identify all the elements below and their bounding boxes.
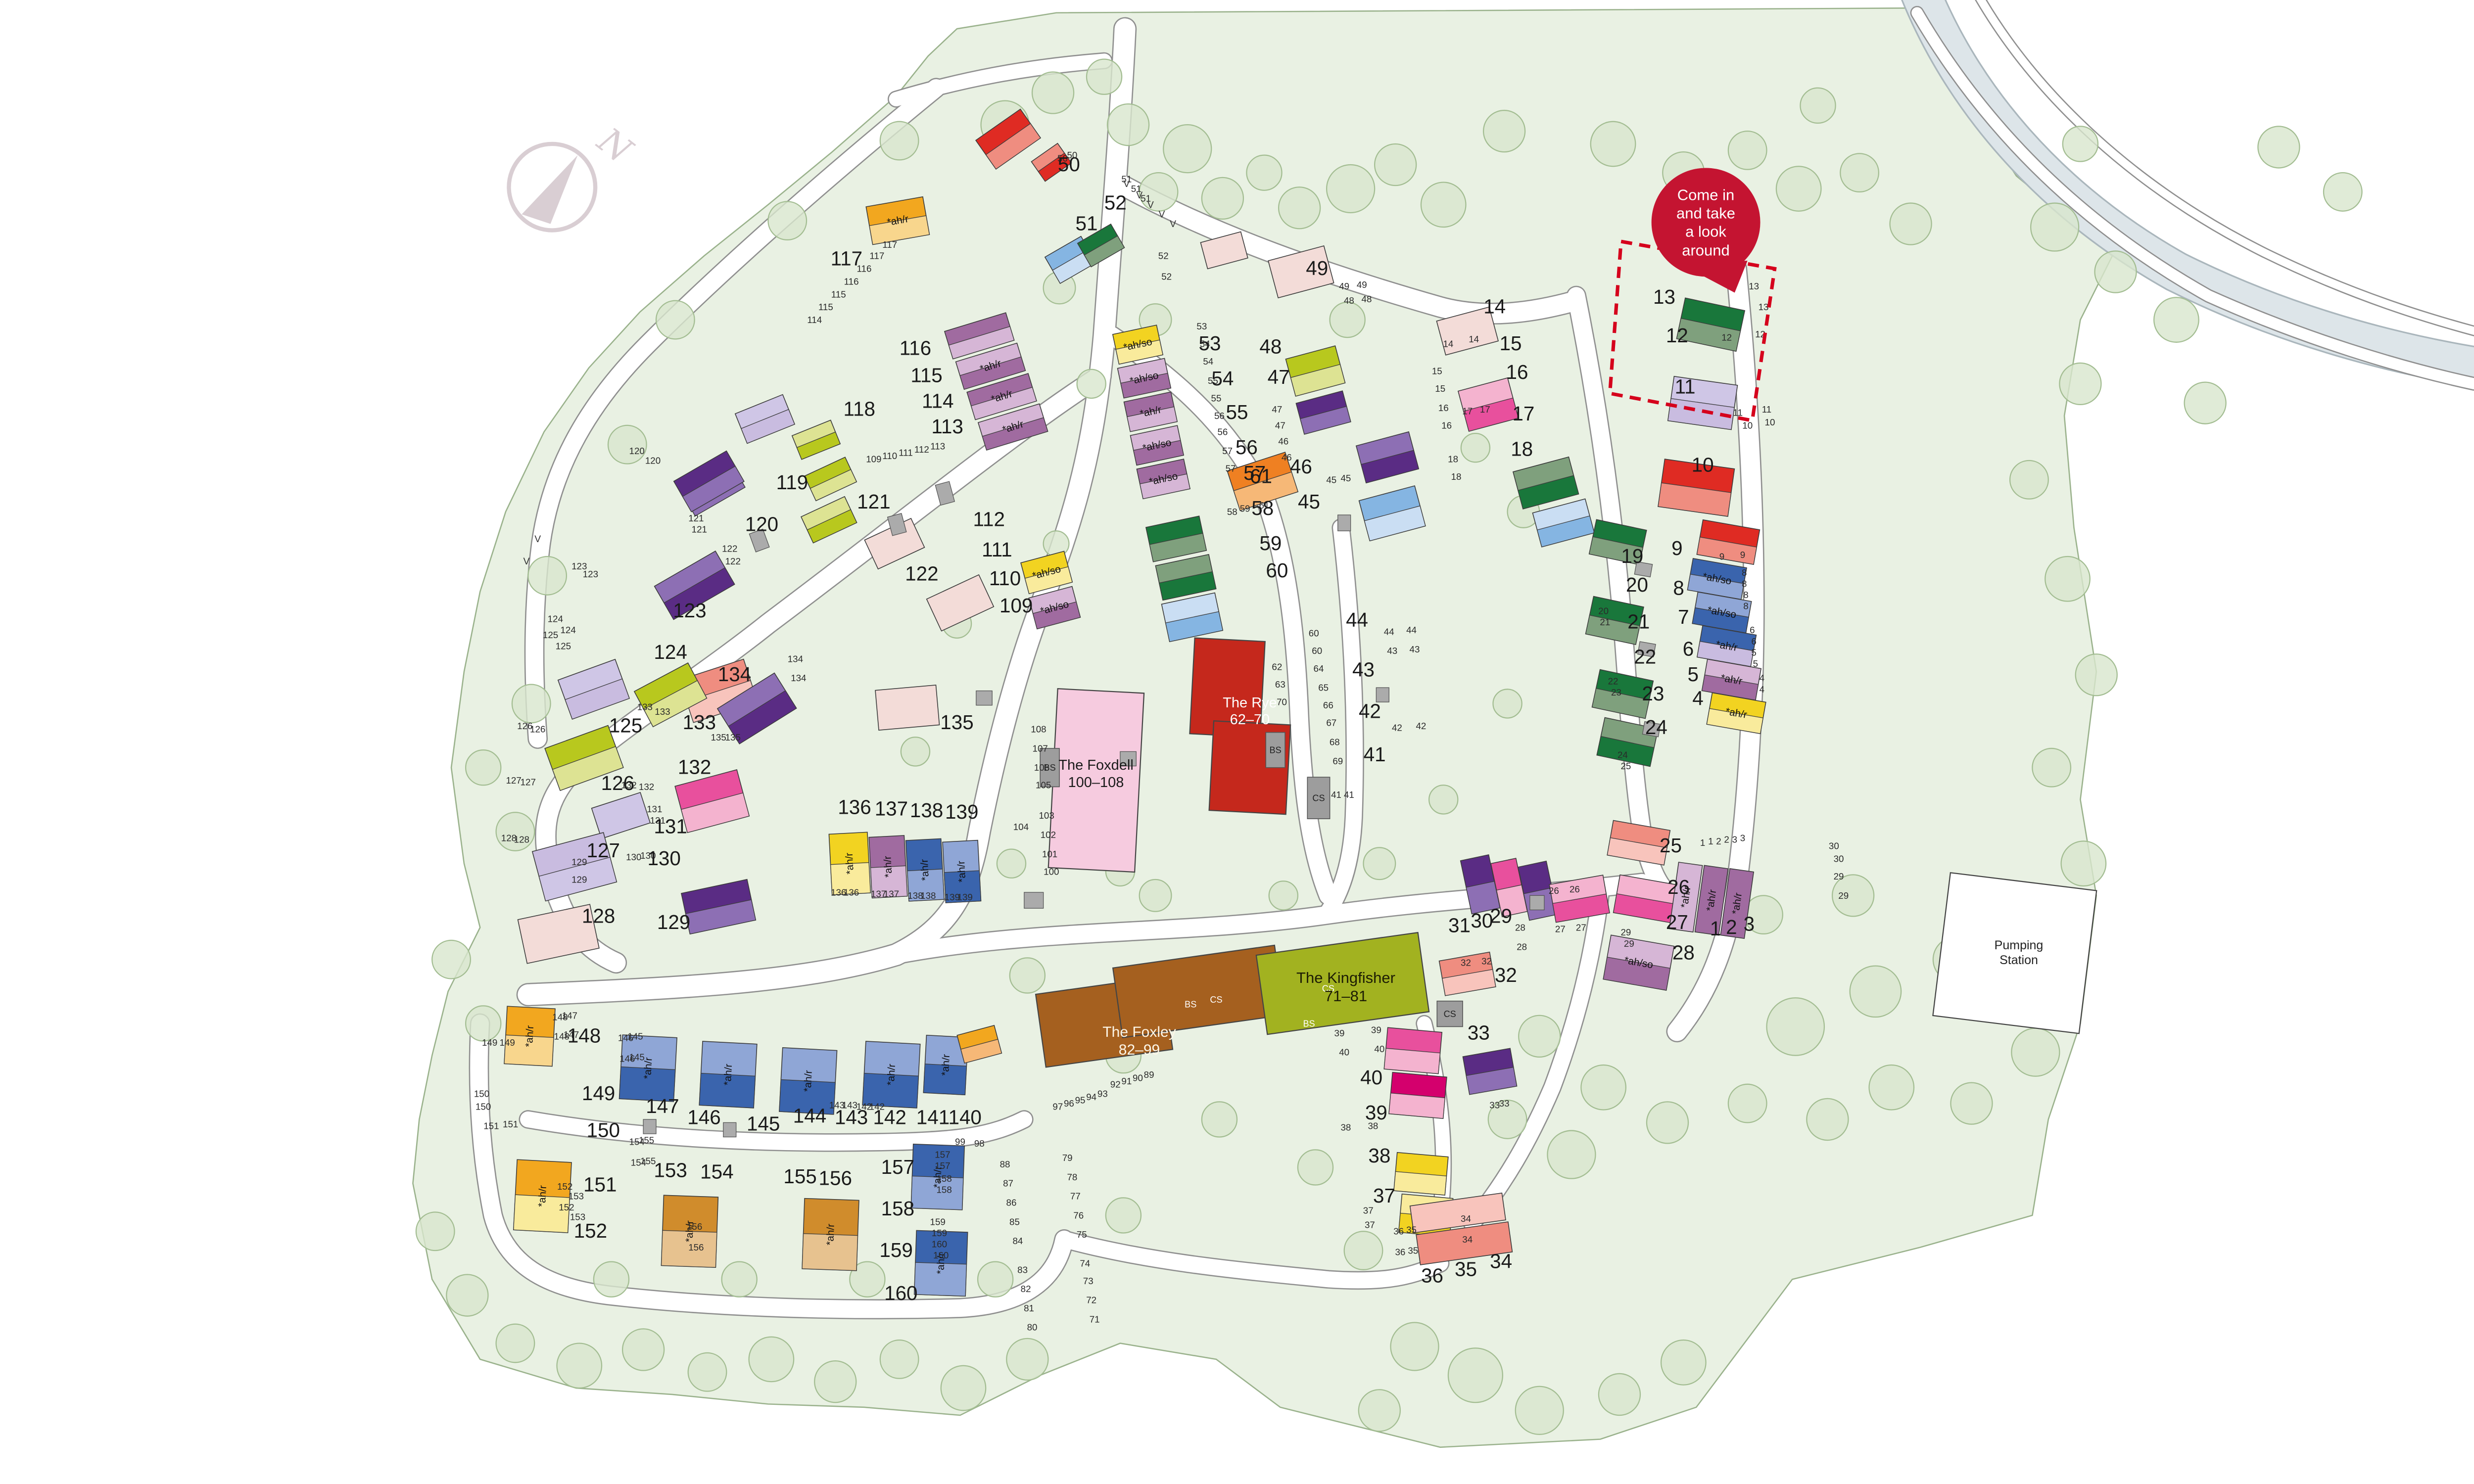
house: *ah/r xyxy=(514,1159,571,1233)
parking-bay-number: 21 xyxy=(1600,617,1610,627)
parking-bay-number: 93 xyxy=(1097,1089,1108,1099)
tree-icon xyxy=(446,1275,488,1316)
parking-bay-number: 43 xyxy=(1410,644,1420,654)
parking-bay-number: 122 xyxy=(722,543,737,554)
parking-bay-number: 158 xyxy=(936,1173,952,1184)
tree-icon xyxy=(2031,203,2079,251)
parking-bay-number: 35 xyxy=(1408,1245,1418,1255)
parking-bay-number: 42 xyxy=(1392,722,1402,733)
parking-bay-number: 59 xyxy=(1240,503,1250,513)
parking-bay-number: 156 xyxy=(687,1221,702,1232)
plot-number: 42 xyxy=(1359,700,1381,723)
parking-bay-number: 10 xyxy=(1765,417,1775,427)
parking-bay-number: 57 xyxy=(1226,464,1236,474)
parking-bay-number: 125 xyxy=(543,630,558,640)
tree-icon xyxy=(1591,122,1636,167)
parking-bay-number: 151 xyxy=(503,1119,518,1129)
house-footprint xyxy=(875,685,939,730)
parking-bay-number: 152 xyxy=(559,1202,574,1212)
parking-bay-number: 149 xyxy=(500,1037,515,1048)
named-building-shape xyxy=(1048,689,1144,872)
parking-bay-number: 84 xyxy=(1012,1236,1023,1246)
parking-bay-number: 15 xyxy=(1432,366,1442,376)
parking-bay-number: 98 xyxy=(974,1138,985,1149)
plot-number: 36 xyxy=(1421,1264,1443,1287)
tree-icon xyxy=(1375,144,1416,185)
parking-bay-number: 77 xyxy=(1070,1191,1081,1202)
parking-bay-number: 2 xyxy=(1724,835,1729,845)
plot-number: 140 xyxy=(948,1106,981,1129)
parking-bay-number: 147 xyxy=(562,1010,577,1020)
parking-bay-number: 29 xyxy=(1620,927,1631,937)
house: *ah/r xyxy=(862,1041,920,1108)
parking-bay-number: 6 xyxy=(1751,636,1756,647)
parking-bay-number: 160 xyxy=(932,1239,947,1250)
tree-icon xyxy=(1599,1374,1640,1415)
parking-bay-number: 3 xyxy=(1732,835,1737,845)
affordable-housing-label: *ah/r xyxy=(722,1064,734,1086)
tree-icon xyxy=(1032,72,1074,113)
affordable-housing-label: *ah/r xyxy=(824,1223,837,1246)
service-box-label: CS xyxy=(1444,1009,1456,1019)
house-footprint-half xyxy=(1394,1171,1446,1195)
plot-number: 129 xyxy=(657,911,690,933)
plot-number: 160 xyxy=(884,1282,917,1304)
plot-number: 130 xyxy=(647,847,680,870)
tree-icon xyxy=(2154,297,2199,342)
plot-number: 14 xyxy=(1483,295,1506,318)
parking-bay-number: 4 xyxy=(1760,673,1764,683)
tree-icon xyxy=(2061,841,2106,886)
parking-bay-number: 44 xyxy=(1406,625,1417,635)
plot-number: 50 xyxy=(1058,153,1080,176)
parking-bay-number: 60 xyxy=(1312,646,1322,656)
parking-bay-number: 34 xyxy=(1462,1234,1473,1245)
visitor-bay-label: V xyxy=(534,534,541,545)
tree-icon xyxy=(2010,461,2048,499)
parking-bay-number: 29 xyxy=(1838,890,1849,901)
plot-number: 15 xyxy=(1500,332,1522,355)
plot-number: 22 xyxy=(1634,646,1656,668)
plot-number: 150 xyxy=(587,1118,620,1141)
parking-bay-number: 101 xyxy=(1042,849,1057,859)
parking-bay-number: 135 xyxy=(725,732,741,742)
tree-icon xyxy=(1767,998,1824,1055)
parking-bay-number: 120 xyxy=(629,446,645,456)
plot-number: 144 xyxy=(793,1104,826,1127)
parking-bay-number: 36 xyxy=(1393,1226,1404,1237)
plot-number: 27 xyxy=(1666,911,1688,933)
parking-bay-number: 106 xyxy=(1034,762,1049,773)
parking-bay-number: 8 xyxy=(1742,567,1747,578)
parking-bay-number: 80 xyxy=(1027,1322,1038,1333)
parking-bay-number: 33 xyxy=(1489,1100,1500,1110)
visitor-bay-label: V xyxy=(1159,209,1165,220)
parking-bay-number: 121 xyxy=(692,524,707,535)
plot-number: 5 xyxy=(1687,663,1698,686)
plot-number: 13 xyxy=(1653,285,1675,308)
visitor-bay-label: V xyxy=(1170,219,1176,230)
tree-icon xyxy=(941,1366,986,1411)
tree-icon xyxy=(1246,155,1282,190)
parking-bay-number: 20 xyxy=(1598,605,1609,616)
named-building-shape xyxy=(1933,873,2096,1033)
plot-number: 158 xyxy=(881,1197,914,1220)
tree-icon xyxy=(1327,165,1375,213)
parking-bay-number: 64 xyxy=(1314,663,1324,674)
parking-bay-number: 17 xyxy=(1480,404,1490,415)
tree-icon xyxy=(901,737,930,766)
parking-bay-number: 113 xyxy=(930,441,945,451)
parking-bay-number: 18 xyxy=(1451,471,1462,482)
tree-icon xyxy=(1077,370,1106,398)
parking-bay-number: 127 xyxy=(506,775,522,786)
plot-number: 49 xyxy=(1306,257,1328,279)
parking-bay-number: 16 xyxy=(1441,420,1452,430)
plot-number: 7 xyxy=(1678,605,1689,628)
plot-number: 143 xyxy=(835,1106,868,1129)
parking-bay-number: 15 xyxy=(1435,383,1445,394)
parking-bay-number: 6 xyxy=(1750,625,1755,635)
parking-bay-number: 82 xyxy=(1021,1284,1031,1294)
tree-icon xyxy=(1140,880,1172,912)
parking-bay-number: 40 xyxy=(1374,1044,1384,1054)
parking-bay-number: 62 xyxy=(1272,662,1282,672)
parking-bay-number: 36 xyxy=(1395,1247,1405,1257)
plot-number: 38 xyxy=(1368,1144,1390,1167)
parking-bay-number: 63 xyxy=(1275,679,1285,690)
tree-icon xyxy=(2185,382,2226,424)
plot-number: 26 xyxy=(1667,876,1690,898)
affordable-housing-label: *ah/r xyxy=(802,1070,814,1092)
tree-icon xyxy=(1869,1065,1914,1110)
plot-number: 43 xyxy=(1352,658,1375,681)
garage xyxy=(1120,751,1136,766)
service-label: BS xyxy=(1185,1000,1196,1010)
plot-number: 154 xyxy=(700,1160,733,1183)
parking-bay-number: 48 xyxy=(1344,295,1354,306)
tree-icon xyxy=(1519,1016,1560,1057)
parking-bay-number: 126 xyxy=(530,724,545,735)
plot-number: 48 xyxy=(1259,335,1282,358)
plot-number: 60 xyxy=(1266,559,1288,582)
plot-number: 20 xyxy=(1626,573,1648,596)
pin-bubble xyxy=(1652,168,1760,277)
tree-icon xyxy=(978,1262,1013,1297)
tree-icon xyxy=(1661,1340,1706,1385)
parking-bay-number: 68 xyxy=(1330,737,1340,747)
garage xyxy=(1338,515,1351,531)
plot-number: 128 xyxy=(582,904,615,927)
affordable-housing-label: *ah/r xyxy=(940,1054,952,1076)
plot-number: 32 xyxy=(1495,964,1517,986)
parking-bay-number: 158 xyxy=(936,1185,952,1195)
parking-bay-number: 97 xyxy=(1052,1102,1063,1112)
plot-number: 17 xyxy=(1512,402,1534,425)
parking-bay-number: 149 xyxy=(482,1037,497,1048)
site-plan: *ah/r*ah/r*ah/r*ah/r*ah/so*ah/so*ah/so*a… xyxy=(0,0,2474,1484)
parking-bay-number: 9 xyxy=(1740,550,1745,560)
plot-number: 137 xyxy=(875,797,908,820)
tree-icon xyxy=(608,425,647,464)
parking-bay-number: 89 xyxy=(1144,1069,1154,1080)
parking-bay-number: 56 xyxy=(1214,411,1225,421)
tree-icon xyxy=(768,201,807,240)
house xyxy=(875,685,939,730)
plot-number: 139 xyxy=(945,800,978,823)
plot-number: 119 xyxy=(776,471,808,494)
affordable-housing-label: *ah/r xyxy=(536,1185,549,1207)
parking-bay-number: 2 xyxy=(1716,836,1721,846)
parking-bay-number: 57 xyxy=(1222,446,1233,456)
house xyxy=(1463,1048,1517,1094)
tree-icon xyxy=(1087,59,1122,94)
tree-icon xyxy=(2011,1028,2059,1076)
parking-bay-number: 45 xyxy=(1326,474,1336,485)
service-label: CS xyxy=(1322,983,1334,993)
plot-number: 23 xyxy=(1642,682,1664,705)
plot-number: 29 xyxy=(1490,904,1512,927)
affordable-housing-label: *ah/r xyxy=(955,860,968,882)
parking-bay-number: 92 xyxy=(1110,1079,1121,1089)
parking-bay-number: 49 xyxy=(1357,279,1367,290)
plot-number: 16 xyxy=(1506,361,1528,383)
parking-bay-number: 53 xyxy=(1196,321,1207,331)
parking-bay-number: 130 xyxy=(626,852,641,862)
parking-bay-number: 105 xyxy=(1036,780,1051,790)
tree-icon xyxy=(1807,1099,1848,1140)
plot-number: 142 xyxy=(873,1106,906,1129)
service-box-label: CS xyxy=(1312,793,1325,803)
plot-number: 61 xyxy=(1250,464,1272,487)
parking-bay-number: 112 xyxy=(914,444,929,455)
parking-bay-number: 65 xyxy=(1318,683,1329,693)
tree-icon xyxy=(622,1329,664,1370)
parking-bay-number: 60 xyxy=(1309,628,1319,639)
parking-bay-number: 40 xyxy=(1339,1047,1349,1058)
plot-number: 118 xyxy=(844,398,875,420)
parking-bay-number: 8 xyxy=(1743,590,1748,600)
garage xyxy=(643,1119,656,1134)
plot-number: 3 xyxy=(1744,912,1755,935)
tree-icon xyxy=(1298,1150,1333,1185)
parking-bay-number: 127 xyxy=(521,777,536,787)
tree-icon xyxy=(1547,1131,1595,1179)
parking-bay-number: 87 xyxy=(1003,1178,1013,1189)
parking-bay-number: 109 xyxy=(866,454,881,464)
parking-bay-number: 1 xyxy=(1700,837,1705,848)
plot-number: 149 xyxy=(582,1082,615,1105)
parking-bay-number: 160 xyxy=(933,1250,949,1260)
tree-icon xyxy=(1776,166,1821,211)
parking-bay-number: 29 xyxy=(1834,871,1844,881)
tree-icon xyxy=(1800,88,1835,123)
parking-bay-number: 11 xyxy=(1733,408,1743,418)
parking-bay-number: 32 xyxy=(1461,958,1471,968)
plot-number: 37 xyxy=(1373,1184,1395,1207)
plot-number: 34 xyxy=(1490,1250,1512,1273)
parking-bay-number: 25 xyxy=(1620,761,1631,771)
parking-bay-number: 23 xyxy=(1611,687,1621,697)
parking-bay-number: 69 xyxy=(1332,756,1343,766)
plot-number: 21 xyxy=(1627,610,1650,633)
plot-number: 46 xyxy=(1290,455,1312,478)
plot-number: 124 xyxy=(654,641,687,663)
service-box-label: BS xyxy=(1270,745,1282,755)
parking-bay-number: 108 xyxy=(1031,724,1046,735)
plot-number: 24 xyxy=(1645,716,1667,739)
parking-bay-number: 10 xyxy=(1742,420,1753,430)
parking-bay-number: 22 xyxy=(1608,676,1618,687)
plot-number: 44 xyxy=(1346,608,1368,631)
tree-icon xyxy=(432,940,471,979)
garage xyxy=(976,691,992,705)
tree-icon xyxy=(1269,881,1298,910)
parking-bay-number: 139 xyxy=(957,892,973,902)
parking-bay-number: 18 xyxy=(1448,454,1458,464)
parking-bay-number: 124 xyxy=(548,614,563,624)
tree-icon xyxy=(1516,1387,1564,1435)
parking-bay-number: 157 xyxy=(935,1150,950,1160)
parking-bay-number: 26 xyxy=(1549,885,1559,896)
parking-bay-number: 79 xyxy=(1062,1153,1073,1163)
parking-bay-number: 129 xyxy=(571,874,587,884)
tree-icon xyxy=(1006,1339,1048,1380)
parking-bay-number: 41 xyxy=(1331,789,1341,800)
plot-number: 141 xyxy=(916,1106,950,1129)
parking-bay-number: 96 xyxy=(1064,1098,1074,1109)
parking-bay-number: 159 xyxy=(932,1228,947,1238)
plot-number: 110 xyxy=(989,567,1021,590)
plot-number: 132 xyxy=(678,756,711,779)
tree-icon xyxy=(1850,966,1901,1017)
parking-bay-number: 76 xyxy=(1073,1210,1084,1220)
house xyxy=(1394,1153,1448,1195)
parking-bay-number: 45 xyxy=(1340,473,1351,483)
parking-bay-number: 71 xyxy=(1090,1314,1100,1324)
parking-bay-number: 17 xyxy=(1462,406,1473,416)
plot-number: 121 xyxy=(857,490,890,513)
plot-number: 148 xyxy=(568,1024,601,1047)
tree-icon xyxy=(2258,126,2299,168)
parking-bay-number: 110 xyxy=(882,451,897,461)
tree-icon xyxy=(880,122,919,160)
parking-bay-number: 81 xyxy=(1024,1303,1034,1313)
parking-bay-number: 26 xyxy=(1570,884,1580,894)
tree-icon xyxy=(528,556,567,595)
plot-number: 115 xyxy=(910,364,942,387)
tree-icon xyxy=(1429,785,1458,814)
plot-number: 153 xyxy=(654,1159,687,1181)
affordable-housing-label: *ah/r xyxy=(523,1025,536,1047)
parking-bay-number: 58 xyxy=(1227,507,1237,517)
parking-bay-number: 70 xyxy=(1277,697,1287,707)
parking-bay-number: 155 xyxy=(639,1135,654,1145)
plot-number: 155 xyxy=(783,1165,816,1188)
tree-icon xyxy=(749,1337,794,1382)
plot-number: 9 xyxy=(1671,537,1682,559)
tree-icon xyxy=(1106,1198,1141,1233)
parking-bay-number: 32 xyxy=(1481,956,1492,966)
parking-bay-number: 5 xyxy=(1753,658,1758,669)
parking-bay-number: 134 xyxy=(788,653,803,664)
parking-bay-number: 30 xyxy=(1834,853,1844,864)
parking-bay-number: 150 xyxy=(476,1102,491,1112)
plot-number: 145 xyxy=(747,1113,780,1135)
tree-icon xyxy=(496,812,535,851)
tree-icon xyxy=(594,1262,629,1297)
parking-bay-number: 24 xyxy=(1618,749,1628,760)
tree-icon xyxy=(1483,110,1525,152)
parking-bay-number: 156 xyxy=(688,1242,704,1252)
parking-bay-number: 52 xyxy=(1158,251,1169,261)
parking-bay-number: 120 xyxy=(645,456,661,466)
tree-icon xyxy=(1140,173,1178,211)
tree-icon xyxy=(1951,1083,1992,1124)
tree-icon xyxy=(1279,187,1320,229)
parking-bay-number: 73 xyxy=(1083,1276,1094,1286)
parking-bay-number: 74 xyxy=(1080,1258,1090,1268)
parking-bay-number: 90 xyxy=(1133,1072,1143,1083)
garage xyxy=(723,1122,736,1137)
tree-icon xyxy=(2063,126,2098,161)
parking-bay-number: 131 xyxy=(647,804,662,814)
parking-bay-number: 145 xyxy=(629,1052,645,1062)
plot-number: 59 xyxy=(1259,532,1282,555)
tree-icon xyxy=(557,1344,602,1389)
tree-icon xyxy=(1390,1322,1438,1370)
visitor-bay-label: V xyxy=(523,556,530,567)
parking-bay-number: 116 xyxy=(844,276,859,286)
parking-bay-number: 129 xyxy=(571,857,587,867)
parking-bay-number: 103 xyxy=(1039,810,1054,821)
plot-number: 51 xyxy=(1076,212,1098,235)
tree-icon xyxy=(1363,847,1395,880)
parking-bay-number: 99 xyxy=(955,1137,965,1147)
parking-bay-number: 42 xyxy=(1416,721,1426,731)
parking-bay-number: 54 xyxy=(1203,356,1213,367)
tree-icon xyxy=(1107,104,1149,145)
plot-number: 138 xyxy=(910,799,943,822)
parking-bay-number: 4 xyxy=(1760,684,1764,695)
parking-bay-number: 151 xyxy=(483,1120,499,1131)
parking-bay-number: 134 xyxy=(791,673,806,683)
tree-icon xyxy=(496,1324,535,1363)
plot-number: 111 xyxy=(982,538,1012,561)
parking-bay-number: 11 xyxy=(1762,404,1771,415)
plot-number: 113 xyxy=(931,415,963,438)
parking-bay-number: 16 xyxy=(1438,403,1449,413)
plot-number: 31 xyxy=(1448,914,1471,937)
plot-number: 58 xyxy=(1251,497,1274,519)
site-plan-map: *ah/r*ah/r*ah/r*ah/r*ah/so*ah/so*ah/so*a… xyxy=(0,0,2474,1484)
plot-number: 135 xyxy=(940,711,973,734)
plot-number: 123 xyxy=(673,599,706,622)
parking-bay-number: 33 xyxy=(1499,1098,1510,1109)
parking-bay-number: 41 xyxy=(1344,789,1354,800)
parking-bay-number: 122 xyxy=(725,556,741,566)
tree-icon xyxy=(2032,748,2071,787)
garage xyxy=(1024,892,1044,908)
tree-icon xyxy=(1421,183,1466,228)
parking-bay-number: 115 xyxy=(818,302,833,312)
plot-number: 157 xyxy=(881,1156,914,1178)
parking-bay-number: 91 xyxy=(1121,1076,1132,1086)
tree-icon xyxy=(688,1353,727,1391)
plot-number: 152 xyxy=(574,1219,607,1242)
tree-icon xyxy=(2095,251,2137,293)
parking-bay-number: 132 xyxy=(639,782,654,792)
